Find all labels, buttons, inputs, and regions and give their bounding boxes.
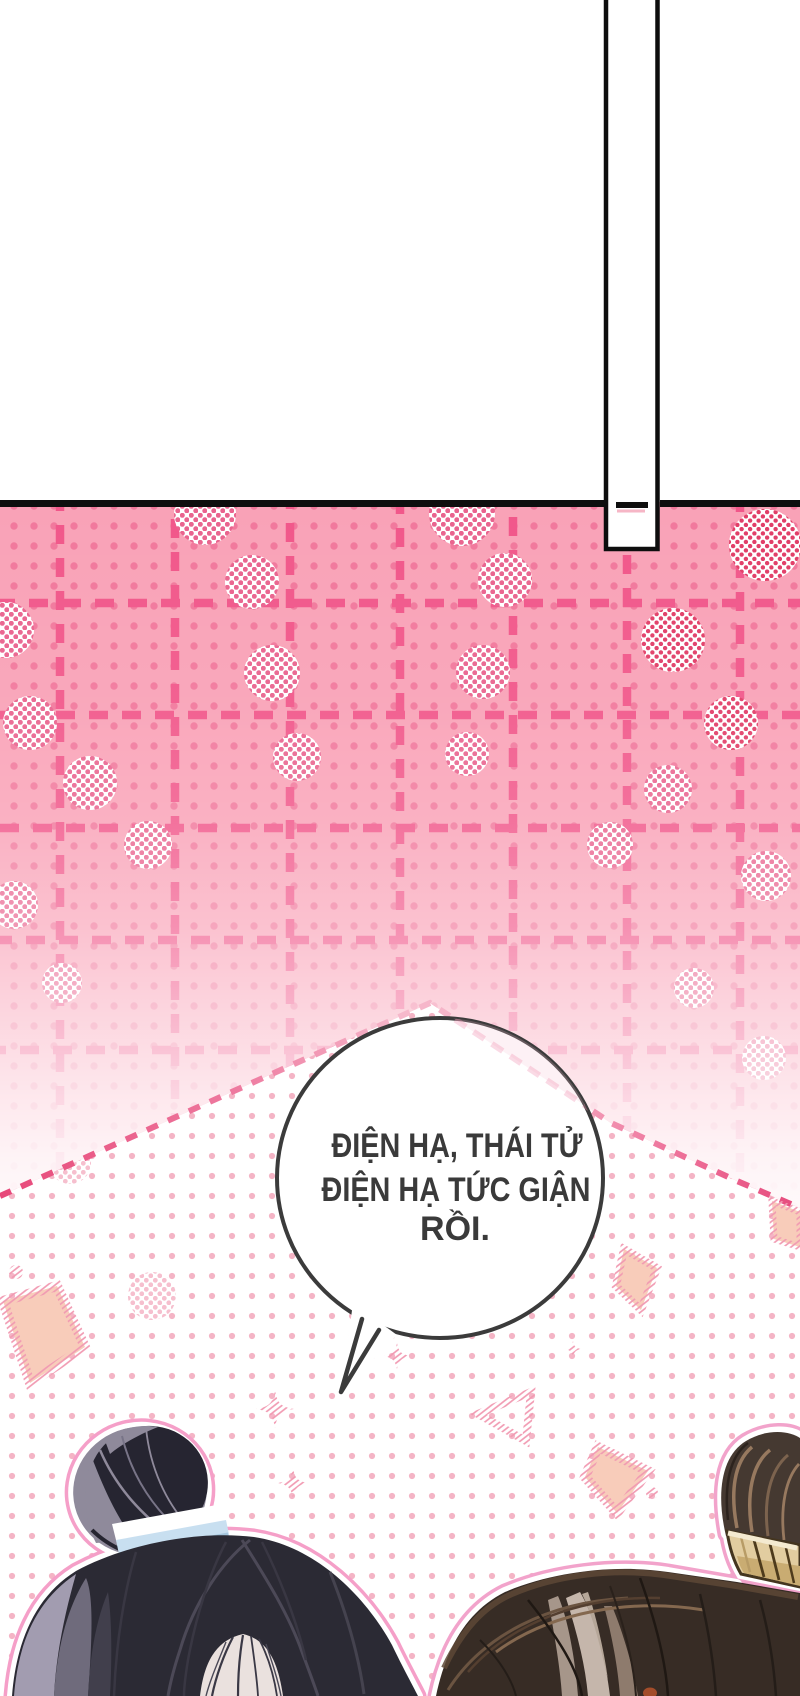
- svg-text:ĐIỆN HẠ TỨC GIẬN: ĐIỆN HẠ TỨC GIẬN: [322, 1171, 591, 1209]
- svg-text:ĐIỆN HẠ, THÁI TỬ: ĐIỆN HẠ, THÁI TỬ: [332, 1127, 584, 1165]
- svg-text:RỒI.: RỒI.: [420, 1210, 490, 1248]
